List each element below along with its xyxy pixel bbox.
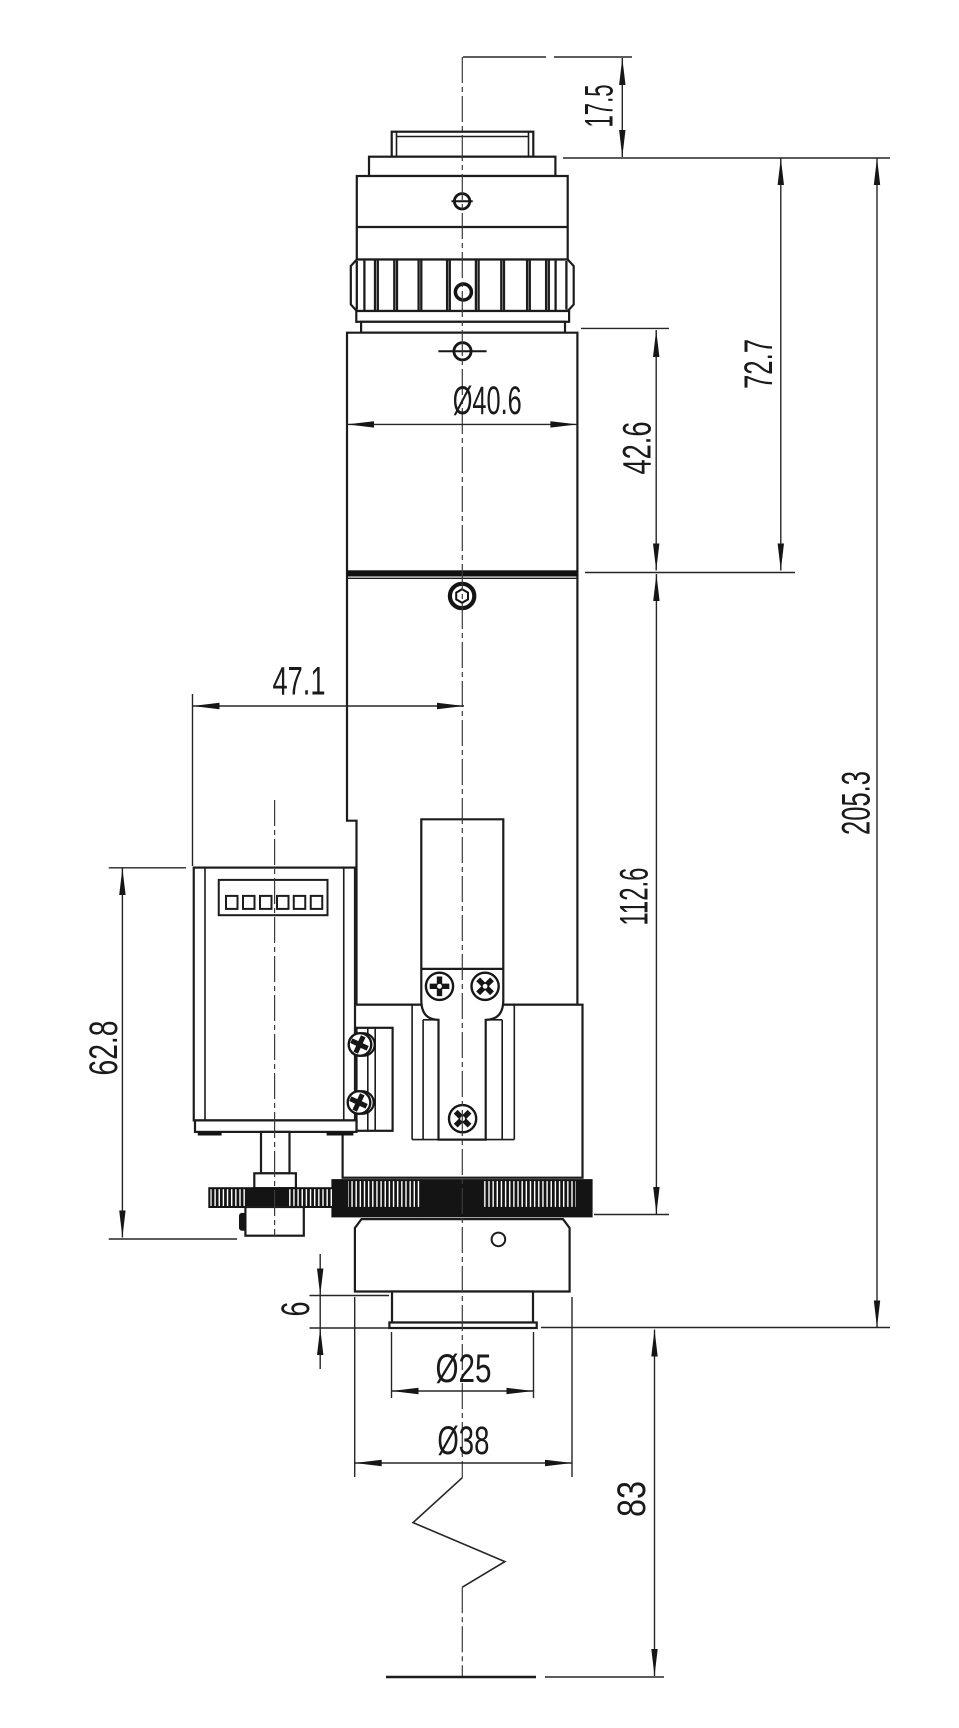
svg-text:72.7: 72.7	[737, 339, 781, 389]
svg-text:17.5: 17.5	[578, 85, 622, 128]
svg-text:6: 6	[274, 1302, 318, 1317]
svg-text:62.8: 62.8	[82, 1021, 126, 1076]
svg-text:112.6: 112.6	[612, 868, 656, 926]
svg-text:Ø40.6: Ø40.6	[453, 379, 522, 423]
svg-text:205.3: 205.3	[834, 771, 878, 835]
svg-text:Ø38: Ø38	[437, 1419, 489, 1463]
svg-text:42.6: 42.6	[616, 422, 660, 475]
svg-text:83: 83	[610, 1481, 654, 1517]
svg-text:47.1: 47.1	[273, 660, 326, 704]
svg-text:Ø25: Ø25	[436, 1347, 492, 1391]
